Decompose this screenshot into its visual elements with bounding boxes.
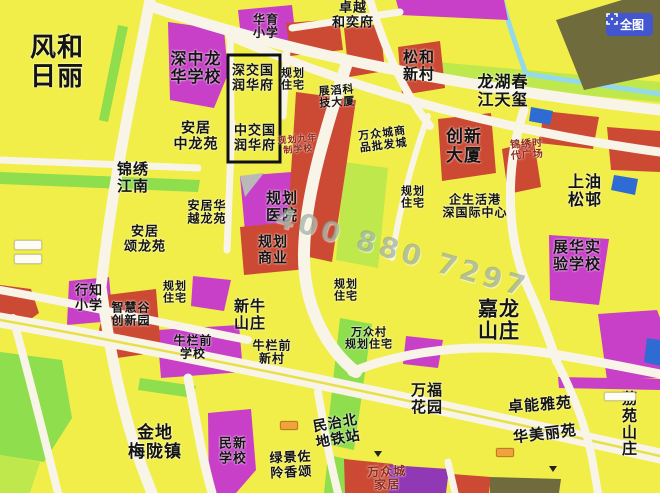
map-label-wanzhong-village-planned: 万众村 规划住宅 xyxy=(345,327,393,352)
map-label-planned-commercial: 规划 商业 xyxy=(258,235,288,266)
map-label-longhu-chunjiang-tianxi: 龙湖春 江天玺 xyxy=(477,73,528,109)
green-strip xyxy=(0,172,200,192)
map-label-planned-residential: 规划 住宅 xyxy=(334,279,358,304)
map-label-planned-residential: 规划 住宅 xyxy=(401,186,425,211)
map-label-jindi-meilongzhen: 金地 梅陇镇 xyxy=(128,424,182,462)
map-label-huayu-primary-school: 华育 小学 xyxy=(253,14,279,41)
map-label-zhongjiaoguo-runhuafu: 中交国 润华府 xyxy=(234,124,276,153)
map-label-zhuoyue-heyifu: 卓越 和奕府 xyxy=(332,1,374,30)
map-label-shenjiaoguo-runhuafu: 深交国 润华府 xyxy=(232,64,274,93)
map-label-shangyousong-village: 上油 松邨 xyxy=(568,173,602,209)
block-blue xyxy=(529,107,553,125)
road-label-chip xyxy=(604,392,636,401)
map-label-lvjing-zuolin-xiangsong: 绿景佐 阾香颂 xyxy=(269,450,312,481)
map-label-songhe-new-village: 松和 新村 xyxy=(403,49,435,83)
road xyxy=(230,30,231,120)
map-label-niulanqian-new-village: 牛栏前 新村 xyxy=(252,340,291,367)
map-label-wanzhongcheng-home: 万众城 家居 xyxy=(367,465,407,493)
map-label-xingzhi-primary-school: 行知 小学 xyxy=(75,284,103,313)
map-marker xyxy=(374,451,382,457)
map-label-fenghe-rili: 风和 日丽 xyxy=(30,34,84,92)
block-blue xyxy=(611,175,638,195)
fullmap-button[interactable]: 全图 xyxy=(606,13,653,36)
map-label-shenzhong-longhua-school: 深中龙 华学校 xyxy=(170,50,221,86)
map-label-chuangxin-tower: 创新 大厦 xyxy=(446,128,482,166)
road xyxy=(0,160,198,168)
map-label-qishenghuogang-center: 企生活港 深国际中心 xyxy=(442,194,507,221)
map-label-jinxiu-jiangnan: 锦绣 江南 xyxy=(117,161,149,195)
map-label-niulanqian-school: 牛栏前 学校 xyxy=(173,335,212,362)
block-olive-bottom xyxy=(490,477,561,493)
map-label-jinxiu-times-plaza: 锦绣时 代广场 xyxy=(510,138,544,163)
green-area xyxy=(0,455,40,493)
map-label-minxin-school: 民新 学校 xyxy=(219,437,247,466)
block-top-center xyxy=(396,0,508,20)
map-label-planned-residential: 规划 住宅 xyxy=(163,281,187,306)
map-label-anju-huayue-longyuan: 安居华 越龙苑 xyxy=(187,200,226,227)
fullmap-button-label: 全图 xyxy=(620,16,644,33)
map-label-xinniu-shanzhuang: 新牛 山庄 xyxy=(234,298,266,332)
road-label-chip xyxy=(496,448,514,457)
map-canvas[interactable]: 风和 日丽 深中龙 华学校 华育 小学 卓越 和奕府 松和 新村 龙湖春 江天玺… xyxy=(0,0,660,493)
road-label-chip xyxy=(280,421,298,430)
map-label-planned-residential: 规划 住宅 xyxy=(281,68,305,93)
map-label-wanfu-garden: 万福 花园 xyxy=(411,382,443,416)
map-label-zhantao-tech-tower: 展滔科 技大厦 xyxy=(318,83,356,110)
block-planned-residential xyxy=(191,276,231,311)
map-label-anju-zhonglongyuan: 安居 中龙苑 xyxy=(174,121,219,152)
map-label-anju-songlongyuan: 安居 颂龙苑 xyxy=(124,225,166,254)
map-label-jialong-shanzhuang: 嘉龙 山庄 xyxy=(478,298,520,343)
map-label-zhanhua-experimental-school: 展华实 验学校 xyxy=(553,239,601,273)
road-label-chip xyxy=(14,254,42,264)
road xyxy=(448,462,455,493)
map-label-zhihuigu-innovation-park: 智慧谷 创新园 xyxy=(111,302,150,329)
map-label-planned-nine-year-school: 规划九年 制学校 xyxy=(277,133,319,157)
road-label-chip xyxy=(14,240,42,250)
map-marker xyxy=(549,466,557,472)
